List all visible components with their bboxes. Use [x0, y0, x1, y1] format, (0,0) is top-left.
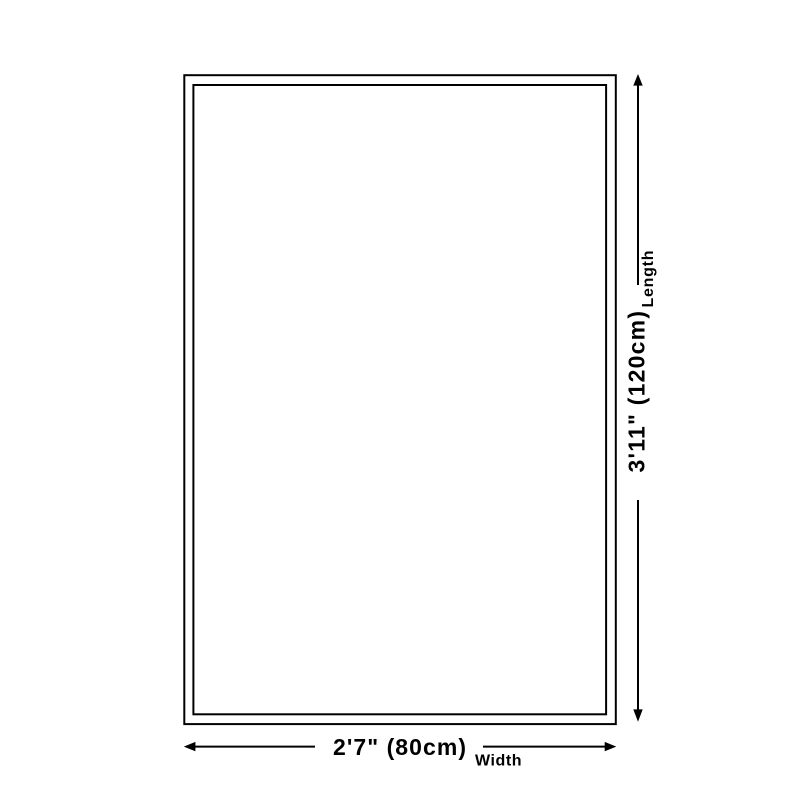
svg-text:Length: Length: [640, 251, 657, 308]
svg-text:2'7" (80cm): 2'7" (80cm): [333, 734, 466, 760]
svg-text:3'11" (120cm): 3'11" (120cm): [624, 311, 650, 473]
svg-text:Width: Width: [475, 753, 522, 770]
